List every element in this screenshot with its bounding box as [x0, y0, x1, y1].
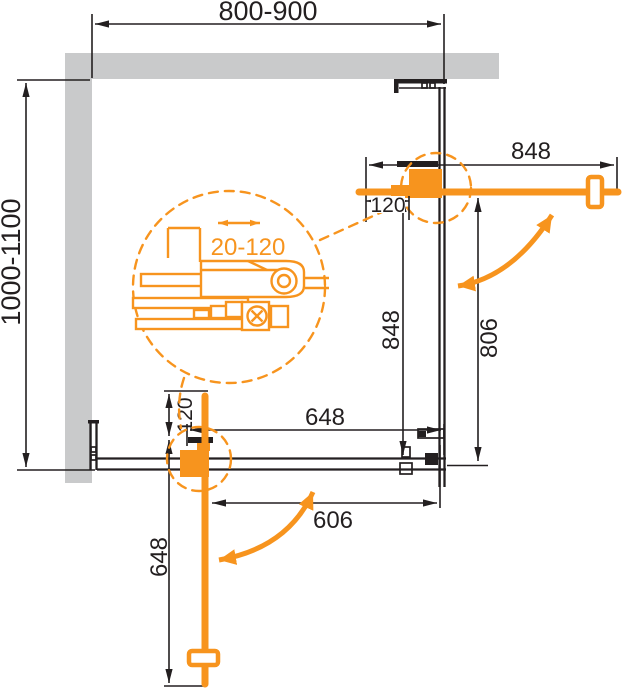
clamp-cap-bottom: [188, 437, 213, 443]
dim-side-height: 848: [378, 198, 405, 455]
detail-block-c: [226, 302, 242, 317]
dim-bottom-opening-label: 606: [313, 507, 353, 534]
dim-side-opening: 806: [476, 198, 503, 461]
dim-side-height-label: 848: [378, 310, 405, 350]
drawing-canvas: 800-900 1000-1100 848 848 806: [0, 0, 625, 692]
dim-bottom-door: 120 648: [146, 391, 208, 686]
dim-door-width-label: 848: [511, 138, 551, 165]
wall-profile-left: [88, 420, 99, 470]
door-assembly: [167, 153, 618, 684]
wall-left: [65, 53, 92, 483]
detail-block-a: [194, 310, 209, 318]
detail-view: 20-120: [133, 191, 329, 383]
wall-top: [65, 53, 499, 79]
shower-enclosure-technical-drawing: 800-900 1000-1100 848 848 806: [0, 0, 625, 692]
dim-side-opening-label: 806: [476, 318, 503, 358]
dim-top-offset-label: 120: [370, 194, 405, 217]
detail-adjustment-label: 20-120: [211, 234, 286, 261]
clamp-cap-top: [397, 161, 438, 167]
dimensions: 800-900 1000-1100 848 848 806: [0, 0, 617, 686]
detail-roller: [272, 269, 297, 294]
detail-rail-upper: [141, 274, 202, 286]
detail-rail-lower: [136, 319, 250, 329]
dim-bottom-door-label: 648: [146, 537, 173, 577]
swing-arrow-top: [458, 215, 552, 286]
dim-top-offset: 120: [366, 194, 409, 220]
dim-bottom-panel-label: 648: [305, 404, 345, 431]
door-handle-bottom: [189, 651, 218, 665]
dim-left-depth-label: 1000-1100: [0, 198, 26, 325]
door-handle-top: [588, 177, 602, 207]
dim-top-width-label: 800-900: [218, 0, 317, 26]
detail-block-d: [271, 306, 288, 327]
corner-connector: [400, 429, 444, 474]
